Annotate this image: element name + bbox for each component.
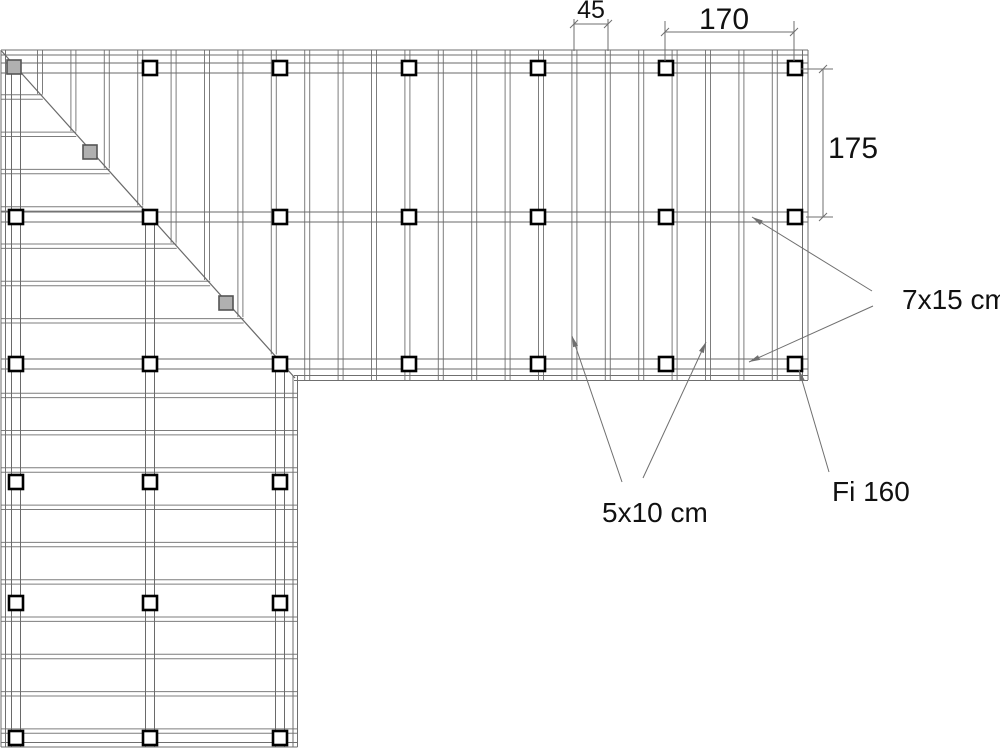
- post-square: [273, 731, 287, 745]
- post-square: [659, 61, 673, 75]
- post-square: [9, 357, 23, 371]
- label-fi160: Fi 160: [799, 370, 910, 507]
- post-square: [9, 731, 23, 745]
- post-square: [788, 357, 802, 371]
- post-square: [273, 596, 287, 610]
- framing-plan-svg: 451701757x15 cm5x10 cmFi 160: [0, 0, 1000, 750]
- dim-170-text: 170: [699, 3, 749, 36]
- label-7x15-text: 7x15 cm: [902, 284, 1000, 315]
- posts: [9, 61, 802, 745]
- post-square: [273, 475, 287, 489]
- leader-line: [643, 342, 706, 478]
- post-square: [531, 210, 545, 224]
- post-square: [143, 210, 157, 224]
- post-square: [143, 596, 157, 610]
- post-square: [143, 357, 157, 371]
- post-square: [9, 596, 23, 610]
- leader-line: [752, 217, 872, 291]
- leader-arrowhead: [699, 342, 706, 353]
- leader-line: [572, 336, 622, 482]
- label-5x10-text: 5x10 cm: [602, 497, 708, 528]
- label-7x15: 7x15 cm: [749, 217, 1000, 362]
- post-square: [402, 61, 416, 75]
- leader-arrowhead: [752, 217, 763, 225]
- post-square: [531, 61, 545, 75]
- grey-post-square: [219, 296, 233, 310]
- post-square: [273, 61, 287, 75]
- post-square: [9, 210, 23, 224]
- post-square: [143, 475, 157, 489]
- grey-post-square: [7, 60, 21, 74]
- post-square: [788, 61, 802, 75]
- post-square: [273, 357, 287, 371]
- post-square: [402, 357, 416, 371]
- dim-175: 175: [801, 65, 878, 221]
- post-square: [273, 210, 287, 224]
- post-square: [659, 357, 673, 371]
- post-square: [402, 210, 416, 224]
- left-band-joists: [1, 95, 298, 734]
- label-5x10: 5x10 cm: [572, 336, 708, 528]
- dim-45-text: 45: [577, 0, 605, 24]
- framing-plan-drawing: 451701757x15 cm5x10 cmFi 160: [0, 0, 1000, 750]
- leader-line: [799, 370, 829, 472]
- post-square: [9, 475, 23, 489]
- post-square: [788, 210, 802, 224]
- post-square: [143, 61, 157, 75]
- label-fi160-text: Fi 160: [832, 476, 910, 507]
- left-band-beams: [12, 61, 285, 747]
- post-square: [143, 731, 157, 745]
- post-square: [659, 210, 673, 224]
- dim-175-text: 175: [828, 132, 878, 165]
- grey-post-square: [83, 145, 97, 159]
- diagonal-grey-posts: [7, 60, 233, 310]
- dim-45: 45: [570, 0, 612, 51]
- post-square: [531, 357, 545, 371]
- leader-line: [749, 306, 873, 362]
